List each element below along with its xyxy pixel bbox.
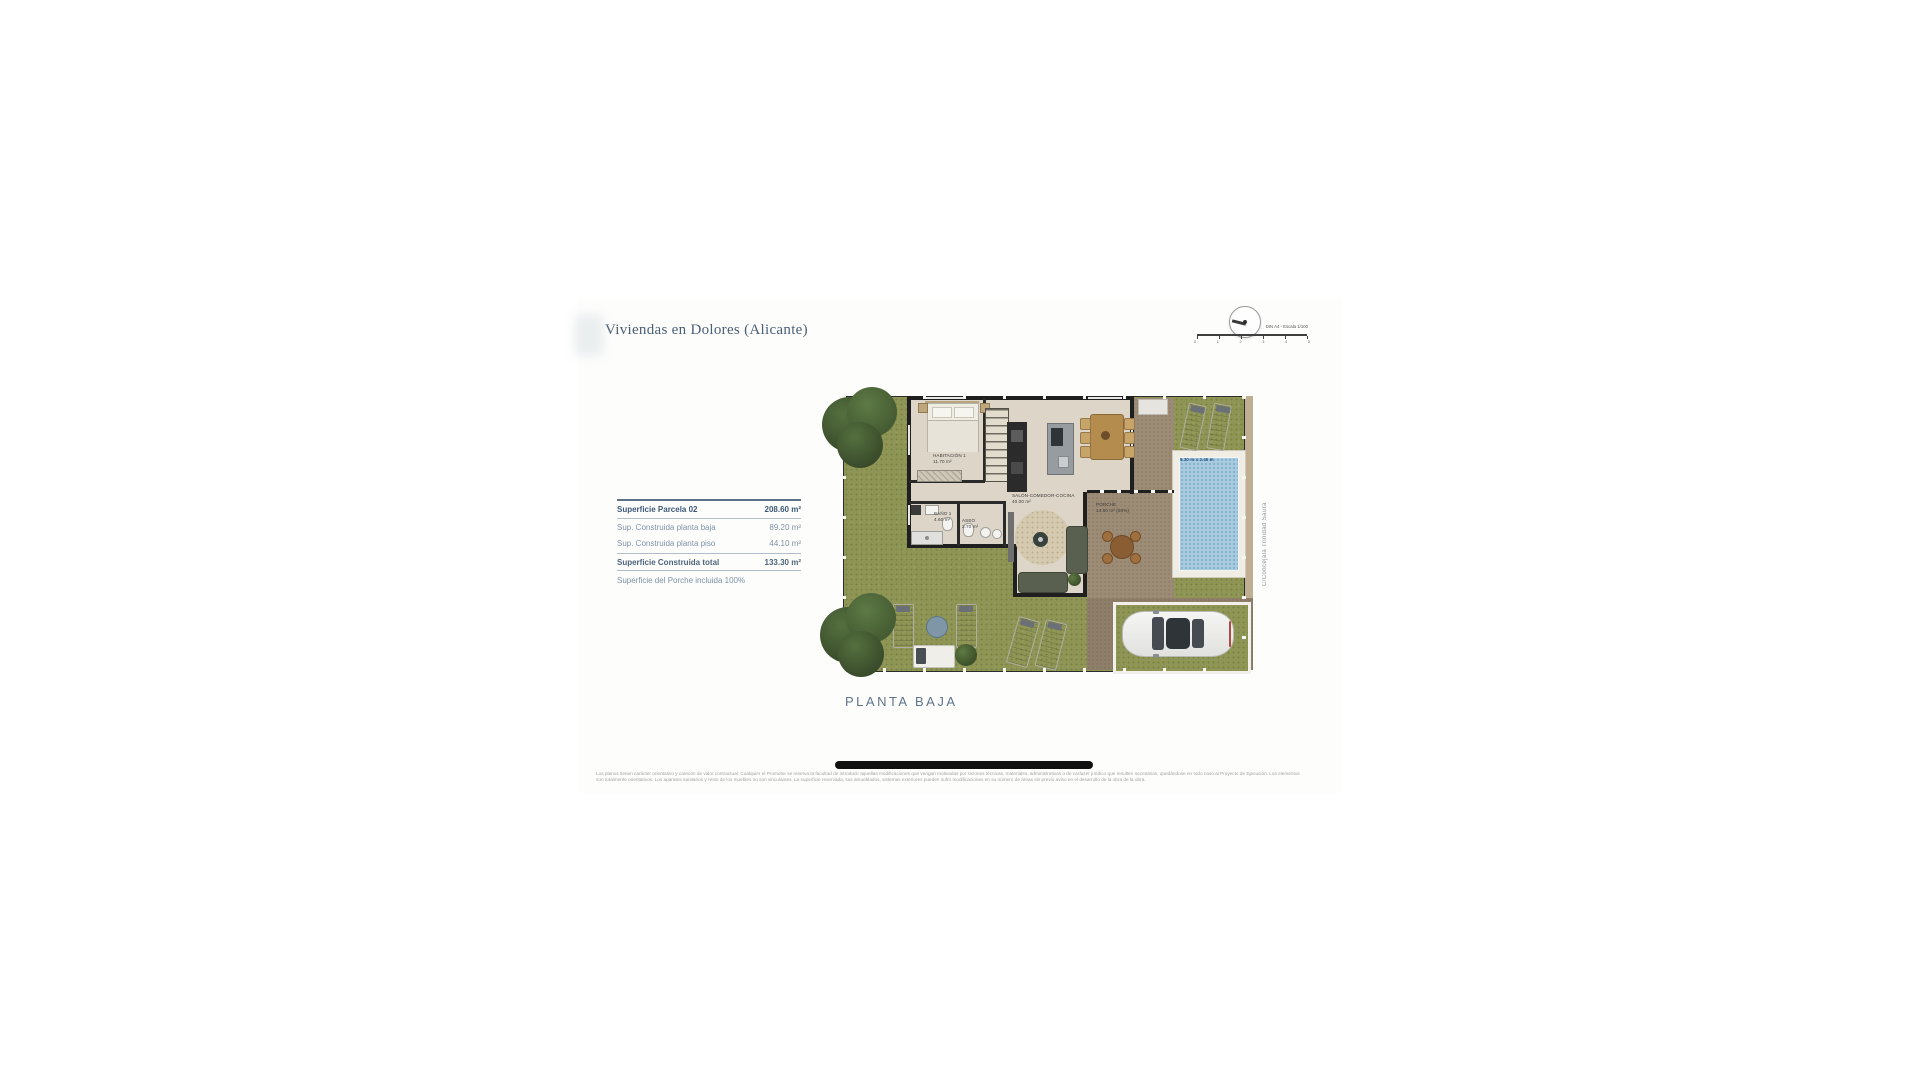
dining-chair (1080, 446, 1091, 458)
row-label: Sup. Construida planta baja (617, 523, 716, 532)
entry-pad (1138, 399, 1168, 415)
dining-chair (1124, 432, 1135, 444)
room-area: 40.00 m² (1012, 499, 1075, 505)
table-row-planta-baja: Sup. Construida planta baja 89.20 m² (617, 519, 801, 535)
pool-dimensions-label: 5.30 m x 2.46 m (1180, 457, 1214, 462)
table-row-total: Superficie Construida total 133.30 m² (617, 553, 801, 571)
garden-table (926, 616, 948, 638)
room-label-porche: PORCHE 14.50 m² (50%) (1096, 502, 1129, 514)
pillow (932, 407, 952, 418)
car-taillight (1229, 621, 1231, 647)
table-row-parcel: Superficie Parcela 02 208.60 m² (617, 499, 801, 519)
row-label: Superficie Construida total (617, 558, 719, 567)
washbasin (980, 527, 991, 538)
nightstand (918, 403, 928, 413)
scale-num: 1 (1217, 340, 1219, 344)
staircase (985, 408, 1009, 482)
tree (820, 593, 902, 677)
dining-chair (1124, 418, 1135, 430)
room-area: 4.60 m² (934, 517, 951, 523)
row-value: 133.30 m² (765, 558, 801, 567)
scan-shadow (574, 314, 604, 356)
porch-chair (1130, 553, 1141, 564)
row-label: Superficie Parcela 02 (617, 505, 698, 514)
parking-pad (1113, 602, 1251, 674)
row-value: 89.20 m² (769, 523, 801, 532)
kitchen-appliance (1011, 462, 1023, 474)
car-mirror (1153, 610, 1159, 614)
fence-posts-north (843, 395, 1243, 399)
shower (911, 531, 943, 545)
room-label-salon: SALÓN-COMEDOR-COCINA 40.00 m² (1012, 493, 1075, 505)
kitchen-counter (1007, 422, 1027, 492)
daybed (913, 645, 955, 668)
scale-num: 3 (1262, 340, 1264, 344)
porch-chair (1130, 531, 1141, 542)
floor-plan: 5.30 m x 2.46 m (830, 385, 1260, 685)
washing-machine (911, 505, 921, 515)
sun-lounger (956, 604, 977, 648)
dining-chair (1124, 446, 1135, 458)
sink (1058, 456, 1069, 468)
scale-text: DIN A4 - Escala 1/100 (1242, 324, 1308, 329)
car-mirror (1153, 654, 1159, 658)
sofa (1066, 526, 1088, 574)
row-value: 44.10 m² (769, 539, 801, 548)
glass-wall-porch (1087, 490, 1174, 493)
room-label-aseo: ASEO 2.70 m² (962, 518, 978, 530)
partition-bano (957, 501, 960, 546)
table-note: Superficie del Porche incluida 100% (617, 576, 801, 585)
surface-table: Superficie Parcela 02 208.60 m² Sup. Con… (617, 499, 801, 585)
coffee-table-top (1038, 537, 1043, 542)
street-label: C/Concejala Trinidad Saura (1262, 476, 1268, 586)
room-area: 14.50 m² (50%) (1096, 508, 1129, 514)
closet (917, 470, 962, 482)
coffee-table (1033, 532, 1048, 547)
car-roof (1166, 618, 1190, 649)
cooktop (1051, 428, 1063, 446)
pool-deck (1172, 450, 1246, 578)
scale-num: 2 (1240, 340, 1242, 344)
tv-unit (1008, 512, 1014, 562)
porch-chair (1102, 531, 1113, 542)
dining-chair (1080, 418, 1091, 430)
sofa (1018, 572, 1068, 593)
porch-chair (1102, 553, 1113, 564)
room-label-habitacion: HABITACIÓN 1 11.70 m² (933, 453, 966, 465)
row-label: Sup. Construida planta piso (617, 539, 715, 548)
table-centerpiece (1101, 431, 1110, 440)
wall-west (907, 396, 911, 548)
daybed-cushion (916, 648, 926, 664)
kitchen-appliance (1011, 430, 1023, 442)
blanket (928, 420, 978, 452)
room-label-bano: BAÑO 1 4.60 m² (934, 511, 951, 523)
scale-num: 4 (1285, 340, 1287, 344)
car-rear-glass (1192, 619, 1204, 648)
plant (1068, 573, 1081, 586)
kitchen-island (1047, 423, 1074, 475)
disclaimer-text: Los planos tienen carácter orientativo y… (596, 771, 1312, 784)
disclaimer-line: son totalmente orientativos. Los aparato… (596, 777, 1312, 783)
page-title: Viviendas en Dolores (Alicante) (605, 322, 808, 339)
window (908, 425, 910, 455)
dining-chair (1080, 432, 1091, 444)
scale-bar-ticks (1197, 336, 1308, 339)
tree (822, 387, 902, 469)
row-value: 208.60 m² (765, 505, 801, 514)
fence-posts-south (843, 668, 1243, 672)
scale-num: 0 (1194, 340, 1196, 344)
window (908, 505, 910, 525)
partition-aseo (1003, 501, 1006, 546)
fence-posts-east (1242, 396, 1246, 670)
bed (927, 403, 979, 452)
car (1122, 611, 1234, 657)
washbasin (992, 529, 1002, 539)
table-row-planta-piso: Sup. Construida planta piso 44.10 m² (617, 535, 801, 551)
room-area: 2.70 m² (962, 524, 978, 530)
pillow (954, 407, 974, 418)
footer-logo-bar (835, 761, 1093, 769)
scale-num: 5 (1308, 340, 1310, 344)
swimming-pool (1179, 457, 1239, 571)
bush (955, 644, 977, 666)
scale-bar-numbers: 0 1 2 3 4 5 (1194, 340, 1310, 344)
room-area: 11.70 m² (933, 459, 966, 465)
car-windshield (1152, 617, 1164, 650)
plan-caption: PLANTA BAJA (845, 694, 958, 709)
wall-living-south (1013, 593, 1087, 597)
plan-sheet: Viviendas en Dolores (Alicante) DIN A4 -… (0, 0, 1920, 1080)
shower-drain (925, 536, 929, 540)
